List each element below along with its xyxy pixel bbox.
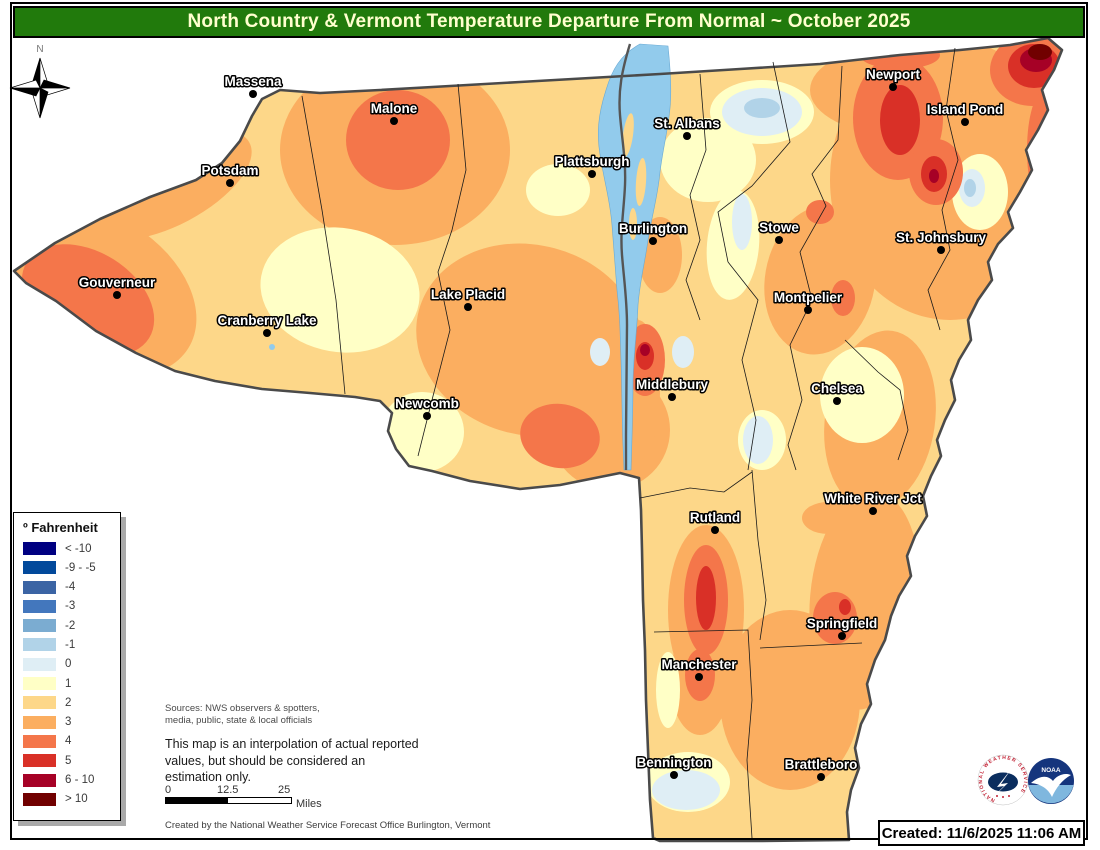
legend-swatch (23, 754, 56, 767)
sources-line-1: Sources: NWS observers & spotters, (165, 703, 320, 715)
legend-label: 5 (65, 755, 71, 767)
legend-item: -2 (23, 619, 116, 632)
weather-map-page: N MassenaMalonePotsdamGouverneurCranberr… (0, 0, 1100, 850)
noaa-logo-icon: NOAA (1028, 758, 1074, 804)
legend-label: 4 (65, 735, 71, 747)
city-label: Chelsea (811, 381, 863, 396)
legend-label: 1 (65, 678, 71, 690)
legend-swatch (23, 542, 56, 555)
legend-swatch (23, 774, 56, 787)
noaa-logo-text: NOAA (1041, 767, 1060, 774)
city-label: Gouverneur (79, 275, 156, 290)
legend-label: -9 - -5 (65, 562, 96, 574)
legend-swatch (23, 696, 56, 709)
scale-end: 25 (278, 784, 290, 796)
agency-logos: NATIONAL WEATHER SERVICE NOAA (972, 752, 1087, 814)
city-dot (961, 118, 969, 126)
city-label: Brattleboro (785, 757, 858, 772)
sources-line-2: media, public, state & local officials (165, 715, 320, 727)
city-dot (588, 170, 596, 178)
legend-item: > 10 (23, 793, 116, 806)
city-dot (249, 90, 257, 98)
scale-track (165, 797, 292, 804)
scale-bar: 0 12.5 25 Miles (165, 784, 335, 804)
city-label: Burlington (619, 221, 687, 236)
legend-label: 0 (65, 658, 71, 670)
sources-note: Sources: NWS observers & spotters, media… (165, 703, 320, 727)
legend-item: -9 - -5 (23, 561, 116, 574)
city-dot (833, 397, 841, 405)
nws-logo-icon: NATIONAL WEATHER SERVICE (978, 755, 1028, 805)
city-label: Rutland (690, 510, 740, 525)
legend-item: 3 (23, 716, 116, 729)
city-label: St. Johnsbury (896, 230, 987, 245)
city-dot (423, 412, 431, 420)
city-label: Montpelier (774, 290, 843, 305)
temperature-field (0, 30, 1100, 850)
city-label: Cranberry Lake (217, 313, 317, 328)
city-label: Bennington (637, 755, 712, 770)
city-label: Island Pond (927, 102, 1004, 117)
legend-swatch (23, 658, 56, 671)
city-dot (711, 526, 719, 534)
legend-label: 3 (65, 716, 71, 728)
legend-swatch (23, 581, 56, 594)
city-dot (390, 117, 398, 125)
city-dot (889, 83, 897, 91)
legend-item: < -10 (23, 542, 116, 555)
created-stamp-box: Created: 11/6/2025 11:06 AM (878, 820, 1085, 846)
legend-item: 4 (23, 735, 116, 748)
city-dot (683, 132, 691, 140)
legend-label: < -10 (65, 543, 92, 555)
created-stamp: Created: 11/6/2025 11:06 AM (882, 825, 1082, 842)
city-dot (649, 237, 657, 245)
legend-label: -4 (65, 581, 75, 593)
city-dot (263, 329, 271, 337)
city-label: Newport (866, 67, 921, 82)
city-label: Manchester (661, 657, 737, 672)
city-dot (668, 393, 676, 401)
legend-swatch (23, 619, 56, 632)
city-label: Massena (224, 74, 282, 89)
city-dot (464, 303, 472, 311)
page-title: North Country & Vermont Temperature Depa… (187, 11, 910, 33)
legend-item: 1 (23, 677, 116, 690)
legend-swatch (23, 600, 56, 613)
legend-item: -1 (23, 638, 116, 651)
city-dot (226, 179, 234, 187)
legend-title: º Fahrenheit (23, 520, 116, 535)
city-label: St. Albans (654, 116, 720, 131)
legend-item: 5 (23, 754, 116, 767)
legend-label: 2 (65, 697, 71, 709)
legend-label: > 10 (65, 793, 88, 805)
title-bar: North Country & Vermont Temperature Depa… (13, 6, 1085, 38)
legend-rows: < -10-9 - -5-4-3-2-10123456 - 10> 10 (23, 542, 116, 806)
legend-item: 2 (23, 696, 116, 709)
legend-swatch (23, 716, 56, 729)
legend-item: -4 (23, 581, 116, 594)
compass-rose-icon: N (10, 44, 70, 118)
legend-swatch (23, 561, 56, 574)
compass-north-label: N (36, 44, 43, 55)
city-label: Lake Placid (431, 287, 505, 302)
city-dot (113, 291, 121, 299)
legend-swatch (23, 735, 56, 748)
legend-label: 6 - 10 (65, 774, 94, 786)
created-by-note: Created by the National Weather Service … (165, 820, 490, 831)
legend-item: -3 (23, 600, 116, 613)
disclaimer-line-2: values, but should be considered an (165, 753, 419, 770)
legend-label: -1 (65, 639, 75, 651)
legend-swatch (23, 677, 56, 690)
legend-box: º Fahrenheit < -10-9 - -5-4-3-2-10123456… (13, 512, 121, 821)
scale-mid: 12.5 (217, 784, 238, 796)
scale-unit: Miles (296, 798, 322, 810)
legend-swatch (23, 793, 56, 806)
city-dot (937, 246, 945, 254)
city-label: Springfield (807, 616, 878, 631)
city-dot (695, 673, 703, 681)
city-dot (838, 632, 846, 640)
city-dot (670, 771, 678, 779)
city-label: Newcomb (395, 396, 459, 411)
legend-swatch (23, 638, 56, 651)
disclaimer-line-1: This map is an interpolation of actual r… (165, 736, 419, 753)
legend-item: 0 (23, 658, 116, 671)
city-label: White River Jct (824, 491, 922, 506)
city-dot (869, 507, 877, 515)
legend-label: -2 (65, 620, 75, 632)
legend-label: -3 (65, 600, 75, 612)
city-label: Potsdam (201, 163, 258, 178)
legend-item: 6 - 10 (23, 774, 116, 787)
city-label: Malone (371, 101, 418, 116)
scale-start: 0 (165, 784, 171, 796)
city-dot (817, 773, 825, 781)
city-label: Middlebury (636, 377, 708, 392)
city-dot (804, 306, 812, 314)
city-dot (775, 236, 783, 244)
city-label: Stowe (759, 220, 799, 235)
city-label: Plattsburgh (554, 154, 629, 169)
small-lake (269, 344, 275, 350)
disclaimer-note: This map is an interpolation of actual r… (165, 736, 419, 786)
